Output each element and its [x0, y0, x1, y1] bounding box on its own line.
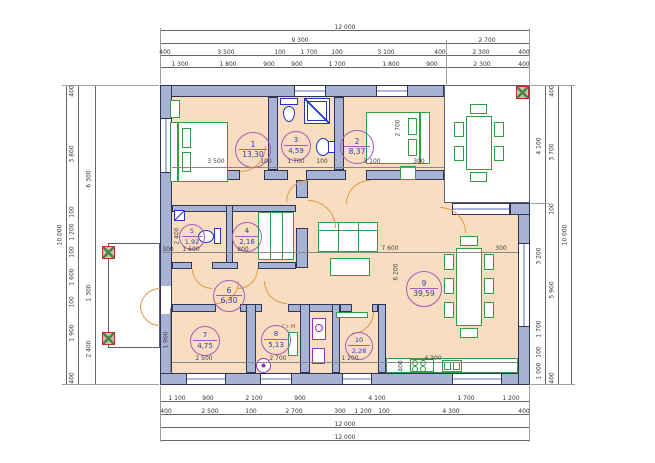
- window-right: [518, 243, 530, 327]
- wall-under-room3a: [264, 170, 288, 180]
- bed2-headboard: [420, 112, 430, 164]
- terrace-column: [516, 86, 529, 99]
- wall-wc-bottom-c: [258, 262, 296, 269]
- dim-line: [66, 85, 67, 385]
- window-living-terrace: [452, 203, 510, 215]
- dim-label: 100: [331, 49, 342, 56]
- extension-line: [531, 384, 575, 385]
- dim-label: 400: [69, 85, 76, 96]
- bed2-pillow1: [408, 118, 417, 135]
- window-room10: [342, 373, 372, 385]
- dim-label: 100: [69, 246, 76, 257]
- room-number: 1: [239, 140, 268, 150]
- dim-label: 400: [69, 372, 76, 383]
- room-tag-7: 7 4,75: [190, 326, 220, 356]
- window-bedroom2: [376, 85, 408, 97]
- wall-stub-terrace: [510, 203, 530, 215]
- dim-label: 1 600: [69, 268, 76, 285]
- dim-line-interior: [163, 252, 518, 253]
- chair: [460, 328, 478, 338]
- interior-dim-label: 100: [316, 158, 327, 165]
- dim-label: 100: [274, 49, 285, 56]
- wall-wc-bottom-a: [172, 262, 192, 269]
- extension-line: [62, 85, 159, 86]
- dining-table: [456, 248, 482, 326]
- dim-line: [95, 85, 96, 385]
- dim-label: 1 700: [536, 320, 543, 337]
- dim-label: 3 200: [536, 247, 543, 264]
- interior-dim-label: 1 200: [341, 355, 358, 362]
- interior-dim-label: 2 500: [195, 355, 212, 362]
- sofa-back-line: [319, 230, 377, 231]
- window-room7: [186, 373, 226, 385]
- extension-line: [446, 40, 447, 84]
- dim-label: 10 000: [562, 225, 569, 246]
- dim-label: 1 200: [502, 395, 519, 402]
- shower-inner: [307, 101, 327, 121]
- chair: [470, 172, 487, 182]
- interior-dim-label: 6 200: [393, 263, 400, 280]
- dim-line-interior: [172, 362, 518, 363]
- dim-label: 1 800: [382, 61, 399, 68]
- dim-label: 400: [518, 61, 529, 68]
- dim-line-interior: [172, 167, 444, 168]
- interior-dim-label: 3 500: [207, 158, 224, 165]
- dim-label: 900: [294, 395, 305, 402]
- dim-label: 400: [549, 85, 556, 96]
- room-tag-6: 6 6,30: [213, 280, 245, 312]
- dim-line: [571, 85, 572, 385]
- dim-label: 1 800: [219, 61, 236, 68]
- wall-78-top-a: [172, 304, 216, 312]
- room-number: 8: [264, 330, 288, 340]
- sink-bath-base: [328, 141, 335, 153]
- dim-label: 900: [426, 61, 437, 68]
- sofa-divider1: [338, 223, 339, 251]
- dim-line: [160, 43, 530, 44]
- dim-label: 400: [159, 49, 170, 56]
- coffee-table: [330, 258, 370, 276]
- dim-label: 900: [202, 395, 213, 402]
- extension-line: [529, 28, 530, 84]
- interior-dim-label: 2 700: [269, 355, 286, 362]
- dim-label: 12 000: [335, 421, 356, 428]
- dim-label: 1 000: [536, 362, 543, 379]
- dim-label: 6 300: [86, 170, 93, 187]
- dim-label: 3 500: [217, 49, 234, 56]
- dim-label: 3 800: [69, 145, 76, 162]
- dim-label: 4 100: [368, 395, 385, 402]
- corner-sink-wc: [174, 210, 185, 221]
- room-tag-8: 8 5,13: [261, 325, 291, 355]
- room-area: 6,30: [221, 296, 238, 306]
- dim-label: 100: [245, 408, 256, 415]
- bed1-headboard: [170, 122, 178, 182]
- wall-hall-living-b: [296, 228, 308, 268]
- dim-line: [78, 85, 79, 385]
- bed2-pillow2: [408, 139, 417, 156]
- chair: [494, 146, 504, 161]
- interior-dim-label: 800: [237, 246, 248, 253]
- dim-label: 2 300: [472, 49, 489, 56]
- wall-under-room3b: [306, 170, 346, 180]
- window-kitchen: [452, 373, 502, 385]
- dim-label: 400: [434, 49, 445, 56]
- interior-dim-label: 1 600: [182, 246, 199, 253]
- wall-wc-top: [172, 205, 296, 212]
- interior-dim-label: 2 700: [395, 119, 402, 136]
- dim-label: 12 000: [335, 24, 356, 31]
- dim-label: 2 500: [201, 408, 218, 415]
- interior-dim-label: 1 900: [163, 331, 170, 348]
- sofa-divider2: [358, 223, 359, 251]
- room-number: 2: [344, 137, 371, 147]
- kitchen-sink-bowl: [444, 362, 451, 370]
- chair: [460, 236, 478, 246]
- dim-label: 2 400: [86, 340, 93, 357]
- bed1-pillow1: [182, 128, 191, 148]
- room-number: 5: [182, 227, 202, 237]
- terrace-table: [466, 116, 492, 170]
- dim-label: 100: [378, 408, 389, 415]
- wall-wc-bottom-b: [212, 262, 238, 269]
- interior-dim-label: 2 400: [174, 227, 181, 244]
- dim-label: 900: [291, 61, 302, 68]
- toilet-tank-wc: [214, 228, 221, 244]
- window-room8: [260, 373, 292, 385]
- extension-line: [160, 28, 161, 84]
- dim-label: 1 700: [328, 61, 345, 68]
- extension-line: [62, 384, 159, 385]
- room-number: 10: [348, 336, 370, 346]
- dim-label: 2 700: [478, 37, 495, 44]
- chair: [454, 122, 464, 137]
- burner: [412, 366, 418, 372]
- room-number: 4: [235, 227, 259, 237]
- chair: [484, 278, 494, 294]
- dim-label: 1 700: [457, 395, 474, 402]
- chair: [444, 302, 454, 318]
- extension-line: [531, 203, 549, 204]
- dim-label: 2 100: [245, 395, 262, 402]
- wall-room3-room2: [334, 97, 344, 170]
- dim-label: 100: [536, 346, 543, 357]
- room-area: 8,37: [349, 147, 366, 157]
- porch-column-bottom: [102, 332, 115, 345]
- dim-label: 12 000: [335, 434, 356, 441]
- kitchen-sink-bowl: [453, 362, 460, 370]
- room-area: 4,75: [197, 341, 213, 351]
- dim-label: 400: [518, 408, 529, 415]
- wall-10-top-a: [340, 304, 352, 312]
- dim-label: 1 300: [86, 284, 93, 301]
- dim-label: 100: [69, 296, 76, 307]
- bed1-pillow2: [182, 152, 191, 172]
- dim-label: 2 300: [473, 61, 490, 68]
- dim-label: 1 300: [171, 61, 188, 68]
- room-number: 3: [284, 136, 308, 146]
- dim-label: 1 700: [300, 49, 317, 56]
- nightstand2: [400, 166, 416, 180]
- dim-label: 1 200: [354, 408, 371, 415]
- interior-dim-label: 100: [260, 158, 271, 165]
- chair: [484, 302, 494, 318]
- dim-label: 5 900: [549, 281, 556, 298]
- dim-label: 1 100: [168, 395, 185, 402]
- dim-label: 9 300: [291, 37, 308, 44]
- dim-label: 10 000: [57, 225, 64, 246]
- dim-label: 2 700: [285, 408, 302, 415]
- room-area: 4,59: [288, 146, 304, 156]
- dim-label: 400: [518, 49, 529, 56]
- dim-label: 400: [549, 372, 556, 383]
- interior-dim-label: 300: [413, 158, 424, 165]
- toilet-tank-bath: [280, 98, 298, 105]
- burner: [420, 366, 426, 372]
- chair: [484, 254, 494, 270]
- dim-line-interior: [170, 308, 171, 372]
- interior-dim-label: 300: [162, 246, 173, 253]
- dim-label: 3 700: [549, 143, 556, 160]
- wardrobe1: [170, 100, 180, 118]
- chair: [454, 146, 464, 161]
- dim-label: 100: [549, 203, 556, 214]
- interior-dim-label: 300: [495, 245, 506, 252]
- dim-label: 1 900: [69, 324, 76, 341]
- dim-label: 900: [263, 61, 274, 68]
- chair: [470, 104, 487, 114]
- room-number: 9: [410, 279, 439, 289]
- chair: [494, 122, 504, 137]
- room-area: 5,13: [268, 340, 284, 350]
- floor-plan-canvas: Ст.М 1 13,30 3 4,59 2 8,37 5 1,92 4 2,16…: [0, 0, 655, 463]
- chair: [444, 254, 454, 270]
- interior-dim-label: 7 600: [381, 245, 398, 252]
- room-number: 6: [216, 286, 241, 296]
- dim-line: [545, 85, 546, 385]
- dim-label: 3 100: [377, 49, 394, 56]
- dim-label: 300: [334, 408, 345, 415]
- room-area: 39,59: [413, 289, 434, 299]
- chair: [444, 278, 454, 294]
- dim-label: 400: [160, 408, 171, 415]
- interior-dim-label: 4 300: [424, 355, 441, 362]
- interior-dim-label: 1 700: [287, 158, 304, 165]
- boiler-dial: [315, 324, 323, 332]
- dim-line: [558, 85, 559, 385]
- room-number: 7: [193, 331, 217, 341]
- window-bath: [294, 85, 326, 97]
- porch-column-top: [102, 246, 115, 259]
- dim-label: 100: [69, 206, 76, 217]
- dim-label: 1 200: [69, 223, 76, 240]
- interior-dim-label: 400: [398, 360, 405, 371]
- room-tag-3: 3 4,59: [281, 131, 311, 161]
- dim-label: 4 100: [536, 137, 543, 154]
- dim-label: 4 300: [442, 408, 459, 415]
- room-tag-9: 9 39,59: [406, 271, 442, 307]
- interior-dim-label: 3 100: [363, 158, 380, 165]
